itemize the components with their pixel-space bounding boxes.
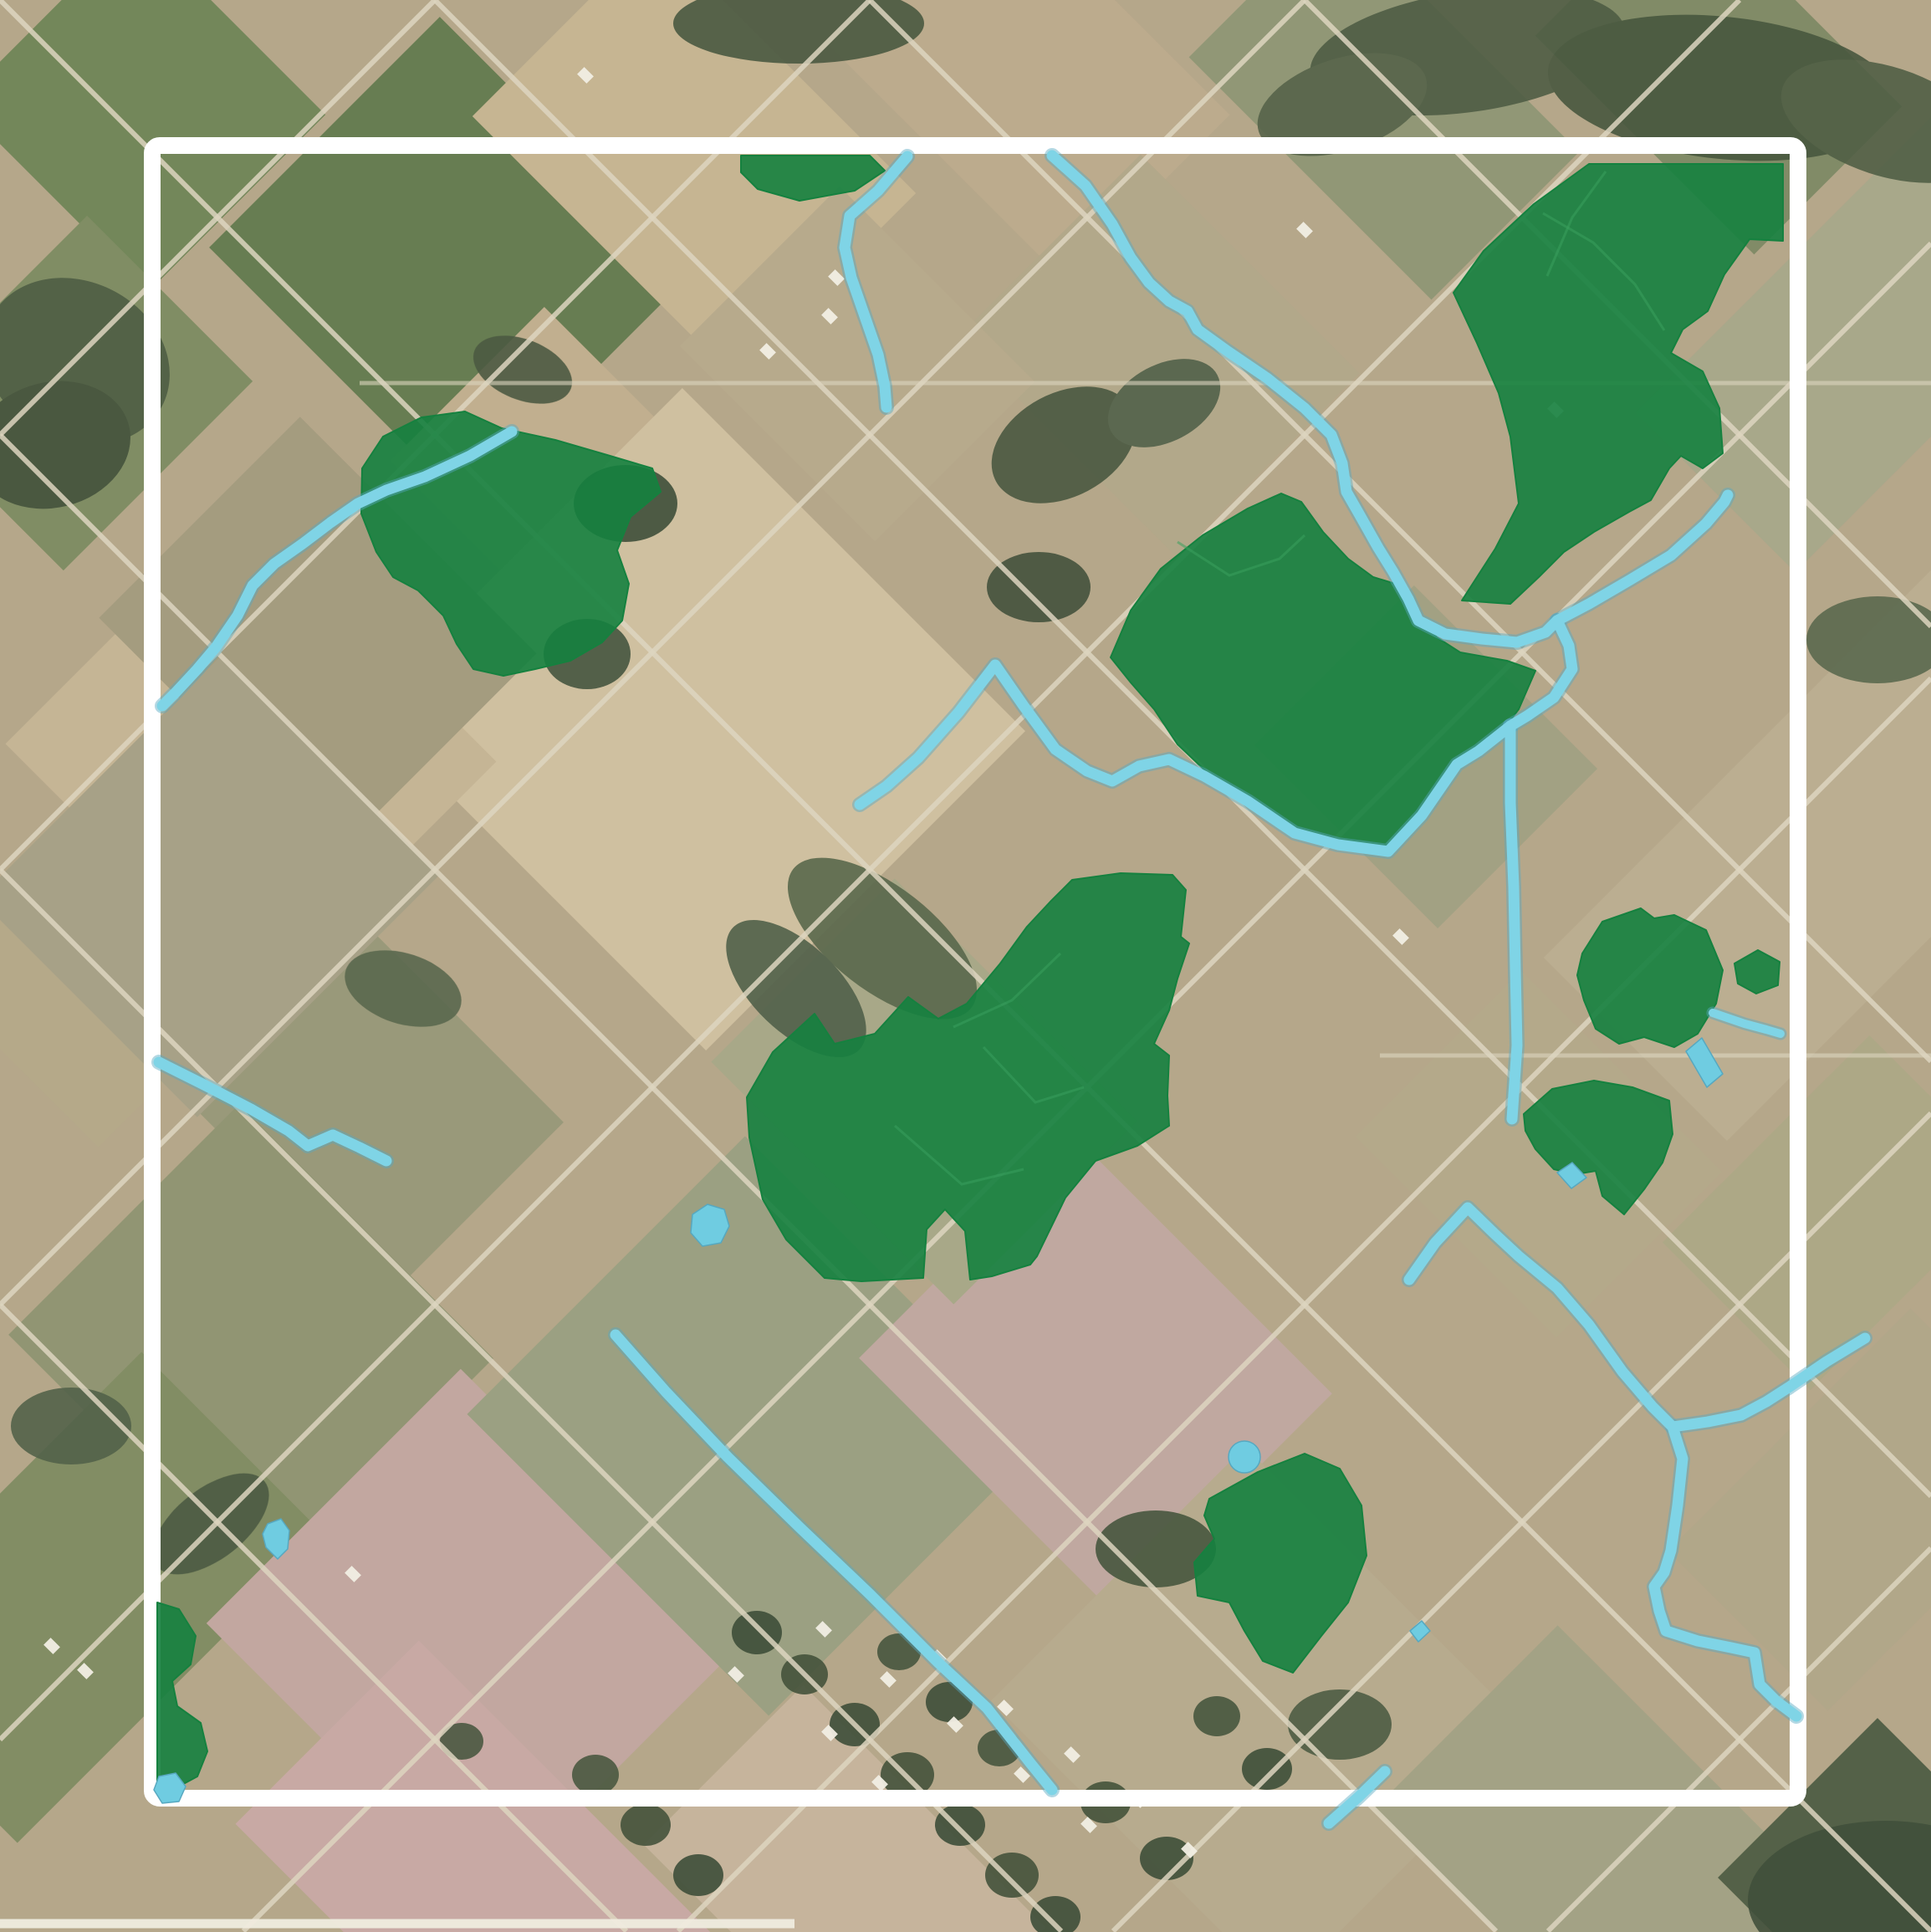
forest-east-upper[interactable] (1577, 908, 1723, 1047)
tree-clump (985, 1853, 1039, 1898)
tree-clump (1242, 1748, 1292, 1790)
map-viewport[interactable] (0, 0, 1931, 1932)
tree-clump (621, 1804, 671, 1846)
tree-clump (987, 552, 1091, 622)
tree-clump (1288, 1689, 1392, 1760)
tree-clump (11, 1388, 131, 1464)
tree-clump (1193, 1696, 1240, 1736)
tree-clump (572, 1755, 619, 1795)
pond-dot-bottom[interactable] (1229, 1441, 1260, 1473)
map-canvas[interactable] (0, 0, 1931, 1932)
tree-clump (673, 1854, 723, 1896)
